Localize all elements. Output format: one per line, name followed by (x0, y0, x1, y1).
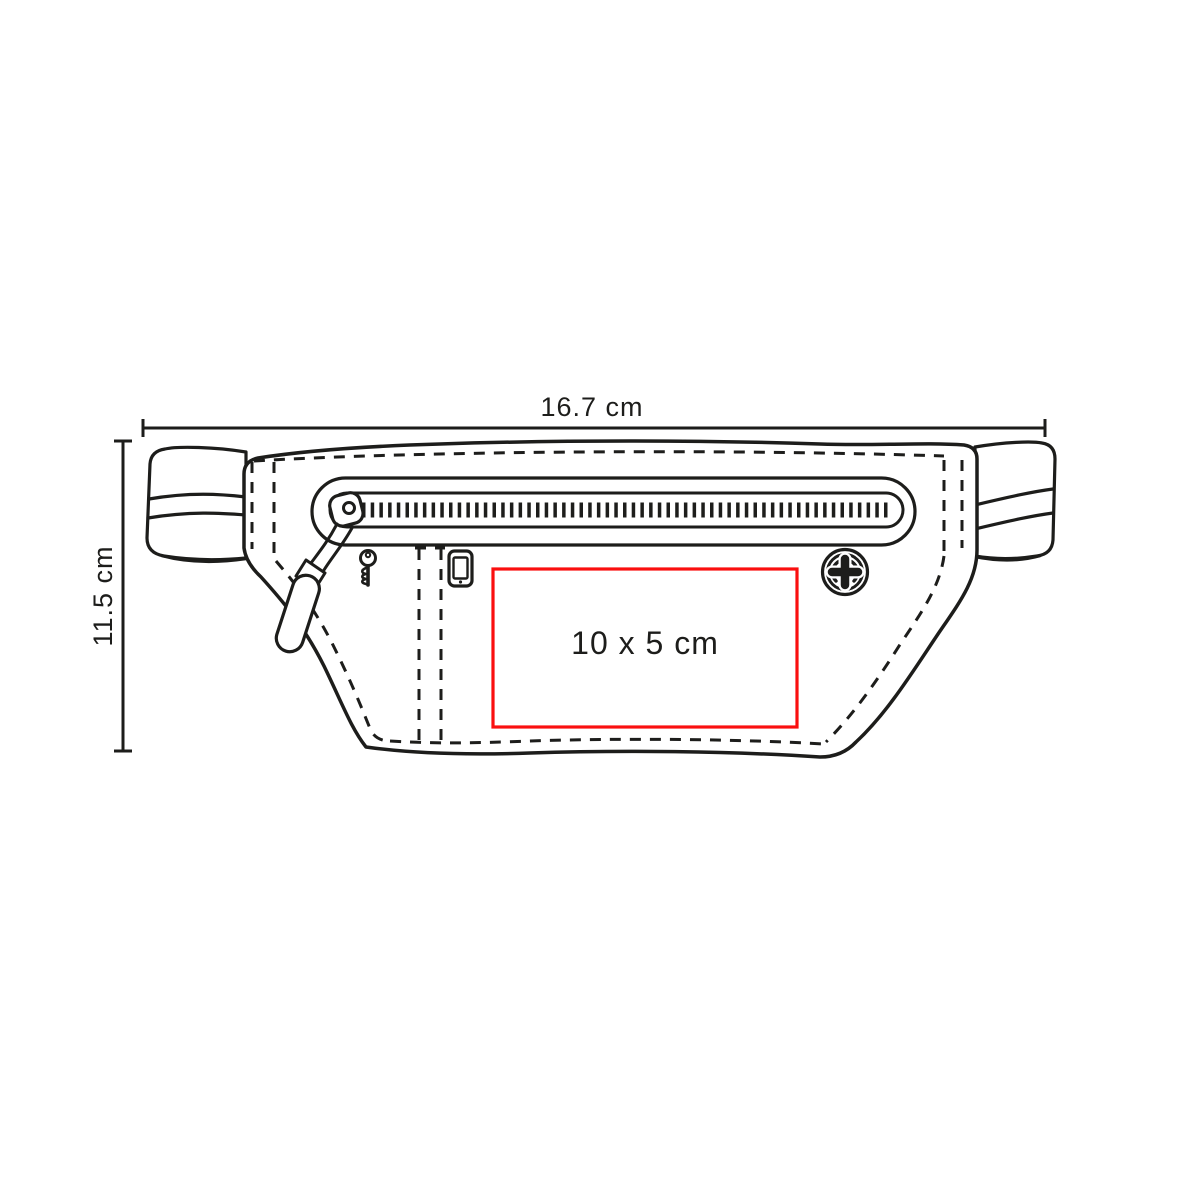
left-strap (147, 447, 246, 561)
left-strap-outline (147, 447, 246, 559)
smartphone-home-button (459, 580, 462, 583)
page: 16.7 cm 11.5 cm (0, 0, 1200, 1200)
right-strap-outline (975, 442, 1055, 559)
snap-button-icon (823, 550, 868, 595)
width-dimension-label: 16.7 cm (540, 392, 643, 422)
height-dimension-label: 11.5 cm (88, 545, 118, 646)
zipper-slider-hole (344, 503, 355, 514)
zipper-icon (312, 478, 915, 545)
product-diagram: 16.7 cm 11.5 cm (0, 0, 1200, 1200)
right-strap (975, 442, 1055, 560)
waist-bag-drawing (147, 441, 1055, 757)
print-area-label: 10 x 5 cm (571, 625, 719, 661)
